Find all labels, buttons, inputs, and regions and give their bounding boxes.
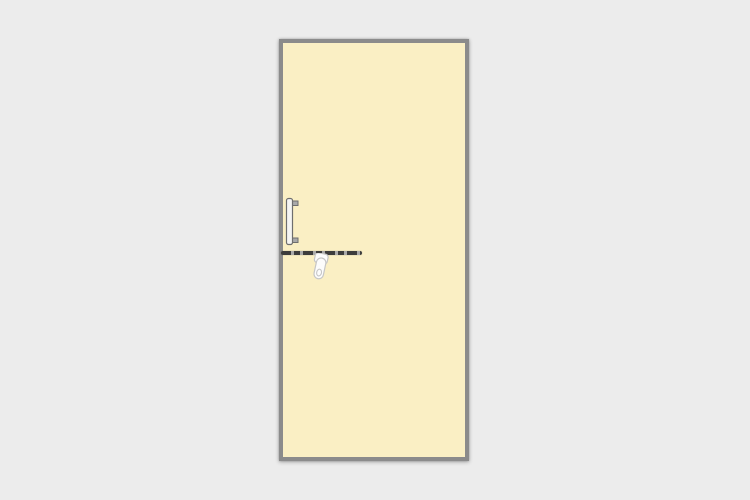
door-panel[interactable]: [279, 39, 469, 461]
pull-handle-icon[interactable]: [284, 197, 300, 247]
pull-handle-bar: [287, 199, 293, 245]
canvas: [0, 0, 750, 500]
lever-handle-icon[interactable]: [311, 253, 337, 283]
